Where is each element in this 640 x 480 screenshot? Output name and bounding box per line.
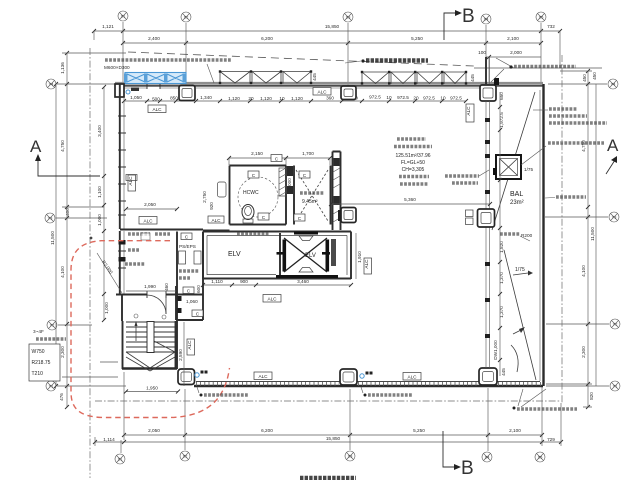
svg-text:476: 476 [59, 393, 64, 401]
svg-text:15,850: 15,850 [325, 24, 340, 29]
svg-text:1,136: 1,136 [60, 62, 65, 74]
svg-text:1,950: 1,950 [146, 386, 158, 391]
svg-text:PS/EPS: PS/EPS [179, 244, 196, 249]
svg-text:ELV: ELV [228, 251, 241, 258]
svg-text:ALC: ALC [364, 259, 369, 269]
svg-text:360: 360 [326, 96, 334, 101]
svg-text:Y1: Y1 [613, 385, 618, 389]
svg-text:1,100: 1,100 [97, 186, 102, 198]
svg-text:10: 10 [279, 96, 285, 101]
svg-text:3~4F: 3~4F [33, 329, 44, 334]
svg-text:W750: W750 [32, 349, 45, 355]
svg-text:A: A [30, 137, 42, 156]
svg-text:ALC: ALC [143, 219, 153, 224]
svg-text:X1: X1 [121, 15, 126, 19]
svg-text:11,500: 11,500 [50, 231, 55, 245]
svg-text:729: 729 [547, 437, 555, 442]
svg-text:X4: X4 [484, 18, 489, 22]
svg-text:B: B [462, 6, 475, 27]
svg-text:X2: X2 [183, 455, 188, 459]
svg-text:X3: X3 [346, 16, 351, 20]
svg-text:1,000: 1,000 [104, 302, 109, 314]
svg-text:1,000: 1,000 [97, 214, 102, 226]
svg-text:Y1: Y1 [49, 385, 54, 389]
svg-text:6,200: 6,200 [261, 428, 273, 433]
svg-text:1,000: 1,000 [287, 178, 292, 190]
svg-text:ALC: ALC [211, 218, 221, 223]
svg-text:2,590: 2,590 [178, 349, 183, 361]
svg-text:3,460: 3,460 [297, 279, 309, 284]
svg-text:1,060: 1,060 [186, 299, 198, 304]
svg-text:X4: X4 [485, 456, 490, 460]
svg-text:125.51m²/37.96: 125.51m²/37.96 [395, 153, 430, 159]
svg-text:Y4: Y4 [49, 83, 54, 87]
svg-text:1,910: 1,910 [357, 251, 362, 263]
svg-text:2,050: 2,050 [144, 202, 156, 207]
svg-text:1,340: 1,340 [200, 95, 212, 100]
svg-text:Y3: Y3 [612, 216, 617, 220]
svg-text:1,700: 1,700 [302, 151, 314, 156]
svg-text:2,100: 2,100 [509, 428, 521, 433]
svg-text:Y2: Y2 [50, 324, 55, 328]
svg-text:1,120: 1,120 [260, 96, 272, 101]
svg-text:2,100: 2,100 [507, 36, 519, 41]
svg-text:100: 100 [478, 50, 486, 55]
svg-text:X3: X3 [348, 455, 353, 459]
svg-text:445: 445 [312, 73, 317, 81]
svg-text:10: 10 [440, 96, 446, 101]
svg-text:1,120: 1,120 [228, 96, 240, 101]
svg-text:400: 400 [65, 208, 70, 216]
svg-text:600: 600 [196, 285, 201, 293]
svg-text:Y2: Y2 [613, 323, 618, 327]
svg-text:11,500: 11,500 [590, 227, 595, 241]
svg-text:5,250: 5,250 [413, 428, 425, 433]
svg-text:DW1,000: DW1,000 [493, 340, 498, 360]
svg-text:5,360: 5,360 [404, 197, 416, 202]
svg-text:ALC: ALC [187, 340, 192, 350]
svg-text:1,120: 1,120 [291, 96, 303, 101]
svg-text:972.5: 972.5 [450, 96, 462, 101]
svg-text:4,100: 4,100 [581, 265, 586, 277]
svg-text:20: 20 [413, 96, 419, 101]
svg-text:ALC: ALC [152, 107, 162, 112]
svg-text:ELV: ELV [305, 253, 316, 259]
svg-text:HCWC: HCWC [243, 190, 259, 196]
svg-text:445: 445 [501, 368, 506, 376]
svg-text:15,850: 15,850 [326, 436, 341, 441]
svg-text:X5: X5 [538, 456, 543, 460]
svg-text:1,110: 1,110 [211, 279, 223, 284]
svg-text:1,114: 1,114 [103, 437, 115, 442]
svg-text:ALC: ALC [317, 90, 327, 95]
svg-text:X1: X1 [118, 458, 123, 462]
svg-text:4,100: 4,100 [60, 266, 65, 278]
svg-text:ALC: ALC [407, 375, 417, 380]
svg-text:2,300: 2,300 [60, 346, 65, 358]
svg-text:5,250: 5,250 [411, 36, 423, 41]
svg-text:445: 445 [470, 74, 475, 82]
svg-text:FL=GL+50: FL=GL+50 [401, 160, 425, 166]
svg-text:2,150: 2,150 [251, 151, 263, 156]
svg-text:972.5: 972.5 [397, 95, 409, 100]
svg-text:1,990: 1,990 [144, 284, 156, 289]
svg-text:450: 450 [592, 72, 597, 80]
svg-text:ALC: ALC [267, 297, 277, 302]
svg-text:972.5: 972.5 [423, 96, 435, 101]
svg-text:23m²: 23m² [510, 200, 524, 206]
svg-text:732: 732 [547, 24, 555, 29]
svg-text:10: 10 [386, 95, 392, 100]
svg-text:3,400: 3,400 [97, 125, 102, 137]
svg-text:X5: X5 [539, 16, 544, 20]
svg-text:X2: X2 [184, 16, 189, 20]
svg-text:2,750: 2,750 [202, 191, 207, 203]
svg-text:900: 900 [240, 279, 248, 284]
svg-text:2,300: 2,300 [581, 346, 586, 358]
svg-text:M600×D300: M600×D300 [104, 65, 130, 70]
svg-text:1,050: 1,050 [130, 95, 142, 100]
svg-text:BAL: BAL [510, 191, 523, 198]
svg-text:ALC: ALC [466, 106, 471, 116]
svg-text:4,750: 4,750 [60, 140, 65, 152]
svg-text:820: 820 [589, 392, 594, 400]
svg-text:2,050: 2,050 [148, 428, 160, 433]
svg-text:A: A [607, 136, 619, 155]
svg-text:972.5: 972.5 [369, 95, 381, 100]
svg-text:1/75: 1/75 [524, 167, 534, 172]
svg-text:B: B [461, 458, 474, 479]
svg-text:R218.75: R218.75 [32, 360, 51, 366]
svg-text:Y4: Y4 [611, 83, 616, 87]
svg-text:6,200: 6,200 [261, 36, 273, 41]
svg-text:850: 850 [170, 96, 178, 101]
svg-text:Y3: Y3 [48, 217, 53, 221]
svg-text:450: 450 [582, 74, 587, 82]
svg-text:500: 500 [152, 97, 160, 102]
svg-text:460: 460 [164, 283, 169, 291]
svg-text:CH=3,305: CH=3,305 [402, 167, 425, 173]
svg-text:1/75: 1/75 [515, 267, 525, 273]
svg-text:T210: T210 [32, 371, 44, 377]
svg-text:ALC: ALC [258, 374, 268, 379]
svg-text:50: 50 [333, 198, 338, 204]
svg-text:920: 920 [209, 202, 214, 210]
svg-text:9.45m²: 9.45m² [302, 199, 318, 205]
svg-text:1,121: 1,121 [102, 24, 114, 29]
svg-text:2,400: 2,400 [148, 36, 160, 41]
svg-text:2,000: 2,000 [510, 50, 522, 55]
svg-text:20: 20 [248, 96, 254, 101]
